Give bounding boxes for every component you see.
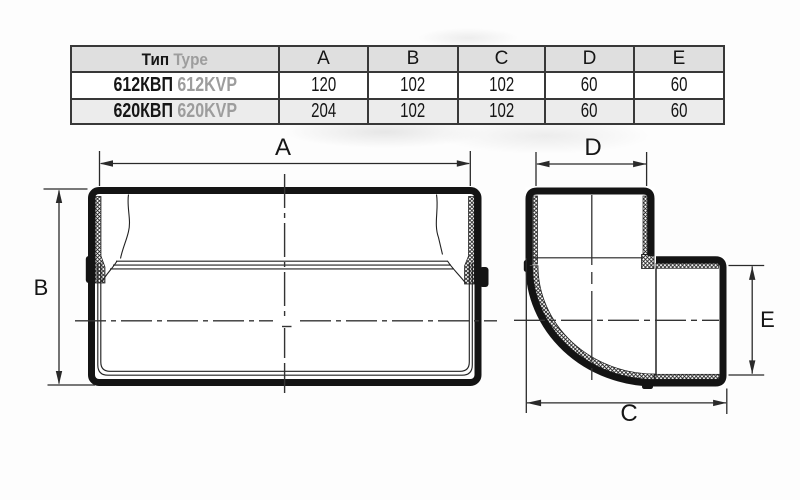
svg-text:D: D — [584, 134, 601, 161]
svg-text:C: C — [620, 400, 637, 427]
svg-text:A: A — [275, 134, 291, 161]
svg-text:E: E — [760, 307, 775, 332]
svg-text:B: B — [34, 275, 49, 300]
